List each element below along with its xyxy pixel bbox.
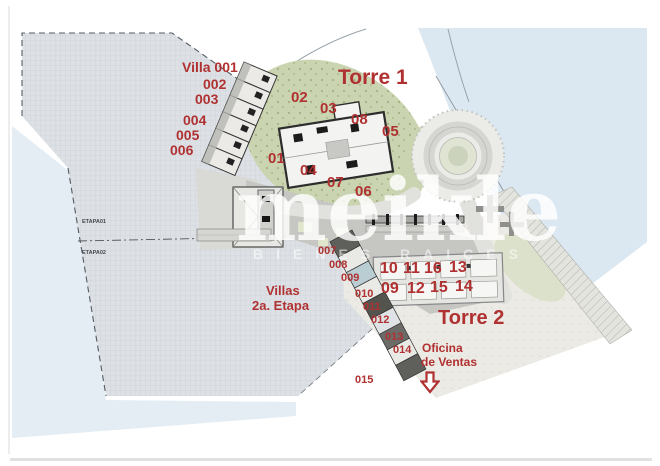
- title-block: ANTEPROYECTO BOATING. TORRE 2 FECHA | PR…: [0, 420, 660, 458]
- pier: [197, 229, 271, 241]
- scan-edge-left: [8, 6, 10, 454]
- scan-edge-bottom: [10, 458, 652, 461]
- roundabout: [412, 110, 504, 202]
- torre2-building: [373, 253, 504, 306]
- plan-sheet: meikle BIENES RAICES Villa 0010020030040…: [0, 0, 660, 466]
- site-plan-drawing: [0, 0, 660, 466]
